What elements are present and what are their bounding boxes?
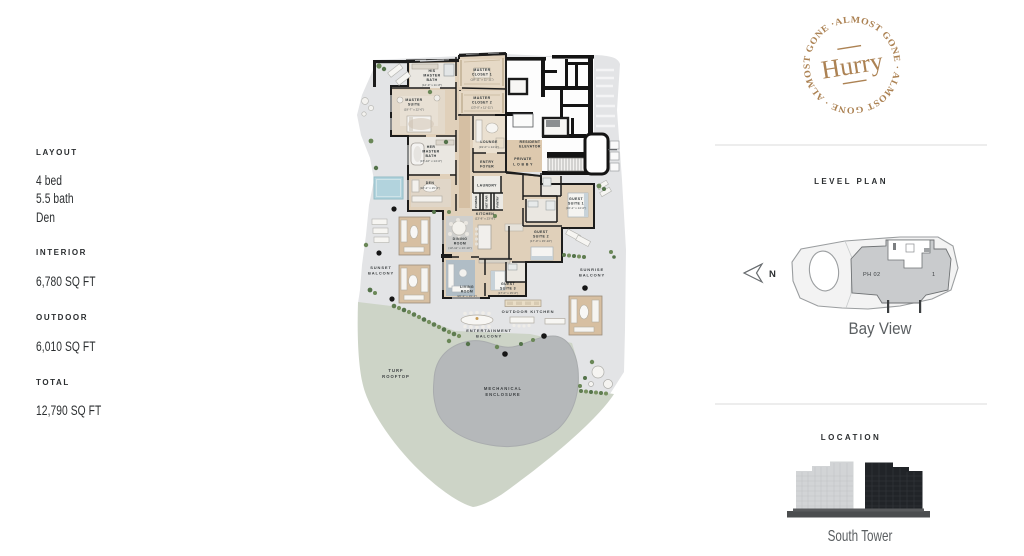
svg-text:(19'-0" x 14'-0"): (19'-0" x 14'-0") (479, 145, 499, 149)
svg-text:L O B B Y: L O B B Y (513, 163, 533, 167)
svg-text:SUNSET: SUNSET (370, 265, 392, 270)
svg-text:PANTRY: PANTRY (496, 196, 500, 207)
svg-text:ROOFTOP: ROOFTOP (382, 374, 410, 379)
svg-text:POWDER: POWDER (474, 196, 478, 209)
svg-text:DEN: DEN (426, 181, 435, 185)
svg-text:LAUNDRY: LAUNDRY (477, 184, 497, 188)
svg-text:(13'-11" x 13'-10"): (13'-11" x 13'-10") (448, 246, 472, 250)
svg-text:KITCHEN: KITCHEN (476, 212, 494, 216)
svg-text:SUNRISE: SUNRISE (580, 267, 604, 272)
svg-text:BALCONY: BALCONY (579, 273, 605, 278)
svg-text:ENCLOSURE: ENCLOSURE (485, 392, 520, 397)
svg-text:CLOSET 1: CLOSET 1 (472, 73, 492, 77)
svg-text:(13'-8" x 23'-8"): (13'-8" x 23'-8") (475, 216, 495, 220)
svg-text:(18'-2" x 15'-6"): (18'-2" x 15'-6") (420, 186, 440, 190)
svg-text:(17'-0" x 15'-10"): (17'-0" x 15'-10") (530, 239, 552, 243)
svg-text:OUTDOOR KITCHEN: OUTDOOR KITCHEN (502, 309, 555, 314)
svg-text:MECHANICAL: MECHANICAL (484, 386, 522, 391)
svg-text:ROOM: ROOM (461, 290, 474, 294)
svg-text:BALCONY: BALCONY (476, 334, 502, 339)
svg-text:(20'-9" x 19'-1"): (20'-9" x 19'-1") (457, 294, 477, 298)
svg-text:HIS: HIS (428, 69, 435, 73)
svg-text:MASTER: MASTER (405, 98, 422, 102)
svg-text:WET BAR: WET BAR (485, 195, 489, 208)
svg-text:ENTERTAINMENT: ENTERTAINMENT (466, 328, 512, 333)
svg-text:DINING: DINING (453, 237, 468, 241)
svg-text:MASTER: MASTER (473, 68, 490, 72)
svg-text:ROOM: ROOM (454, 242, 467, 246)
svg-text:CLOSET 2: CLOSET 2 (472, 101, 492, 105)
svg-text:MASTER: MASTER (422, 150, 439, 154)
svg-text:ELEVATOR: ELEVATOR (519, 145, 541, 149)
svg-text:ENTRY: ENTRY (480, 160, 494, 164)
svg-text:SUITE 3: SUITE 3 (500, 287, 516, 291)
svg-text:FOYER: FOYER (480, 165, 494, 169)
svg-text:RESIDENT: RESIDENT (520, 140, 541, 144)
svg-text:HER: HER (427, 145, 436, 149)
svg-text:MASTER: MASTER (423, 74, 440, 78)
svg-text:BATH: BATH (425, 154, 436, 158)
svg-text:PRIVATE: PRIVATE (514, 157, 532, 161)
svg-text:(16'-2" x 14'-0"): (16'-2" x 14'-0") (566, 206, 586, 210)
svg-text:GUEST: GUEST (534, 230, 549, 234)
svg-text:LOUNGE: LOUNGE (480, 140, 498, 144)
svg-text:GUEST: GUEST (501, 282, 516, 286)
svg-text:SUITE 1: SUITE 1 (568, 202, 584, 206)
svg-text:(12'-9" x 11'-8"): (12'-9" x 11'-8") (422, 83, 442, 87)
svg-text:TURF: TURF (388, 368, 403, 373)
svg-text:BATH: BATH (426, 78, 437, 82)
svg-text:(23'-0" x 11'-11"): (23'-0" x 11'-11") (471, 105, 493, 109)
svg-text:SUITE: SUITE (408, 103, 421, 107)
svg-text:GUEST: GUEST (569, 197, 584, 201)
svg-text:(18'-11" x 11'-11"): (18'-11" x 11'-11") (470, 77, 493, 81)
svg-text:LIVING: LIVING (460, 285, 474, 289)
svg-text:SUITE 2: SUITE 2 (533, 235, 549, 239)
svg-text:MASTER: MASTER (473, 96, 490, 100)
svg-text:(17'-0" x 15'-0"): (17'-0" x 15'-0") (498, 291, 518, 295)
svg-text:BALCONY: BALCONY (368, 271, 394, 276)
svg-text:(19'-7" x 22'-0"): (19'-7" x 22'-0") (404, 107, 424, 111)
svg-text:(15'-10" x 14'-0"): (15'-10" x 14'-0") (420, 159, 442, 163)
